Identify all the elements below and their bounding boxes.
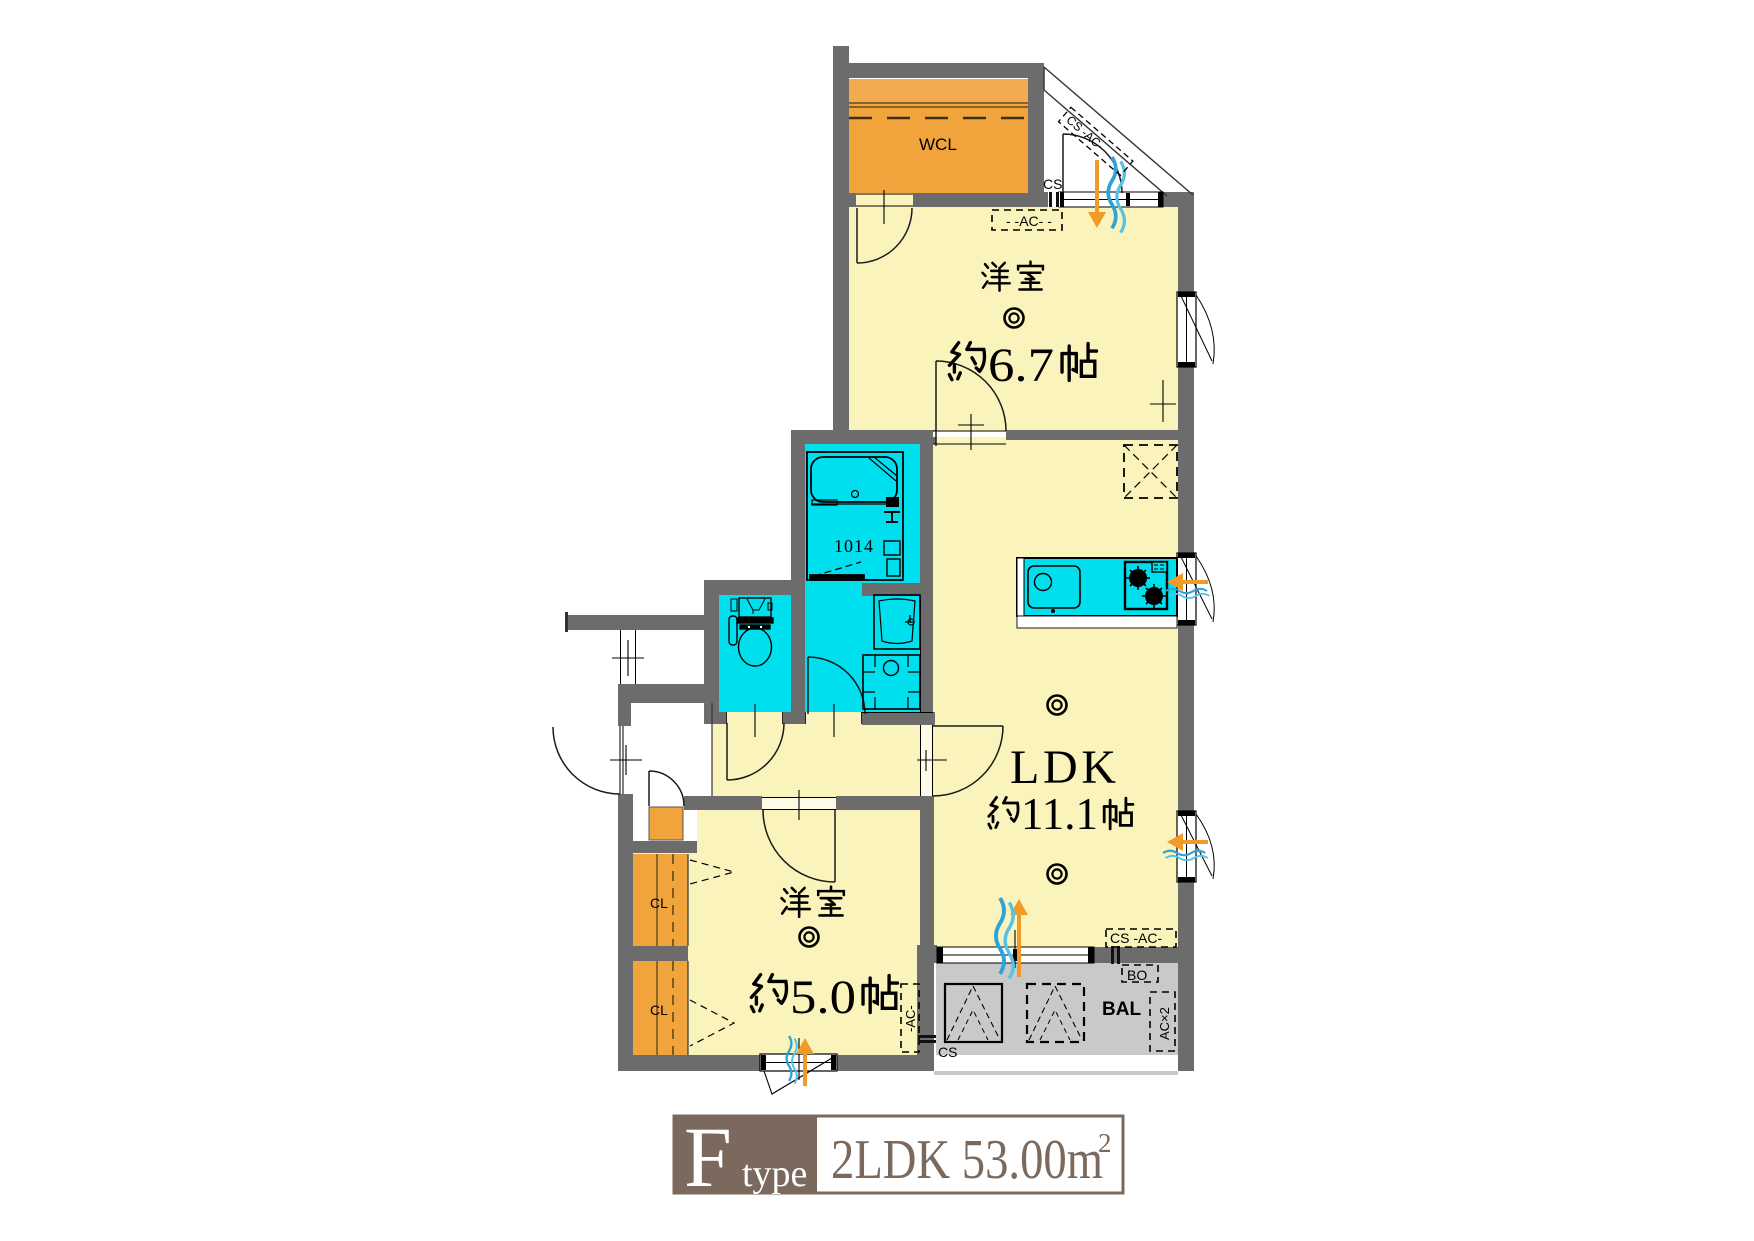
svg-text:-AC-: -AC-: [903, 1005, 918, 1032]
svg-text:BAL: BAL: [1102, 999, 1141, 1020]
svg-text:LDK: LDK: [1010, 741, 1116, 794]
svg-text:11.1: 11.1: [1021, 788, 1098, 839]
svg-text:CS -AC-: CS -AC-: [1110, 930, 1162, 946]
svg-text:5.0: 5.0: [790, 971, 856, 1024]
svg-text:BO: BO: [1127, 967, 1147, 983]
svg-text:CL: CL: [650, 1002, 668, 1018]
svg-text:WCL: WCL: [919, 135, 957, 154]
svg-text:type: type: [742, 1153, 807, 1195]
svg-text:CS: CS: [1043, 176, 1062, 192]
svg-text:2: 2: [1098, 1128, 1112, 1158]
svg-text:1014: 1014: [834, 536, 874, 556]
svg-text:2LDK 53.00m: 2LDK 53.00m: [831, 1129, 1103, 1191]
svg-text:F: F: [684, 1109, 732, 1205]
svg-text:CS: CS: [938, 1044, 957, 1060]
svg-text:6.7: 6.7: [988, 339, 1054, 392]
svg-text:AC×2: AC×2: [1157, 1007, 1172, 1040]
svg-text:- -AC- -: - -AC- -: [1006, 213, 1052, 229]
svg-text:CL: CL: [650, 895, 668, 911]
